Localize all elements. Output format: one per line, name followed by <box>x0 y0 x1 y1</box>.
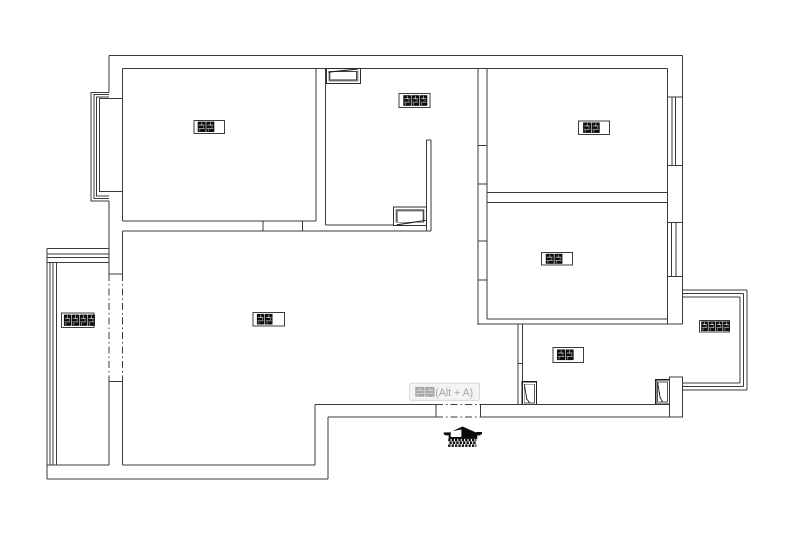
svg-text:(Alt + A): (Alt + A) <box>435 387 473 399</box>
